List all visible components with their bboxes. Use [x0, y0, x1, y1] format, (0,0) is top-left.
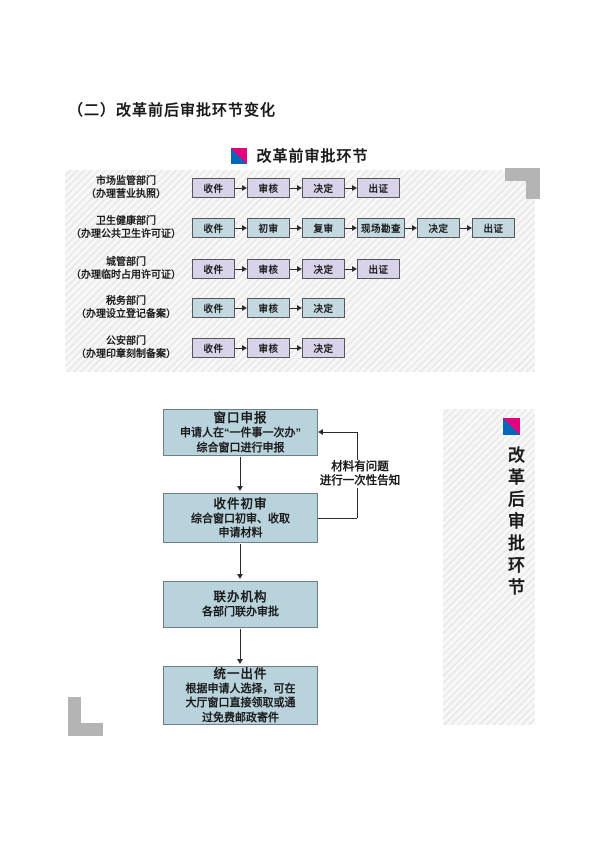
after-section-panel: 改革后审批环节: [443, 409, 535, 725]
flow-box-line: 综合窗口进行申报: [197, 441, 285, 456]
step-box: 决定: [302, 338, 345, 358]
right-arrow: [345, 178, 357, 198]
down-arrow: [236, 544, 245, 579]
step-box: 现场勘查: [357, 218, 405, 238]
right-arrow: [235, 178, 247, 198]
step-box: 收件: [192, 298, 235, 318]
flow-box-title: 窗口申报: [213, 410, 267, 426]
arrow-head: [412, 225, 417, 231]
arrow-head: [297, 266, 302, 272]
corner-bracket-bottom-left: [68, 697, 103, 736]
feedback-line-top: [323, 432, 358, 433]
dept-flow-row: 税务部门（办理设立登记备案）收件审核决定: [65, 295, 345, 321]
right-arrow: [345, 259, 357, 279]
after-heading-label: 改革后审批环节: [502, 446, 527, 600]
flow-box-line: 申请人在“一件事一次办”: [180, 426, 301, 441]
right-arrow: [290, 259, 302, 279]
arrow-head: [352, 225, 357, 231]
step-box: 收件: [192, 259, 235, 279]
after-flow-box: 窗口申报申请人在“一件事一次办”综合窗口进行申报: [163, 409, 318, 456]
flow-box-title: 统一出件: [213, 666, 267, 682]
arrow-head: [242, 345, 247, 351]
right-arrow: [235, 298, 247, 318]
arrow-head: [467, 225, 472, 231]
dept-note: （办理临时占用许可证）: [65, 269, 187, 282]
arrow-head: [297, 185, 302, 191]
arrow-head: [242, 185, 247, 191]
after-flow-box: 统一出件根据申请人选择，可在大厅窗口直接领取或通过免费邮政寄件: [163, 666, 318, 725]
dept-label: 市场监管部门（办理营业执照）: [65, 175, 187, 201]
dept-flow-row: 公安部门（办理印章刻制备案）收件审核决定: [65, 335, 345, 361]
dept-name: 市场监管部门: [65, 175, 187, 188]
page: （二）改革前后审批环节变化 改革前审批环节 市场监管部门（办理营业执照）收件审核…: [0, 0, 600, 849]
flow-box-title: 联办机构: [213, 589, 267, 605]
flow-box-line: 过免费邮政寄件: [202, 711, 279, 726]
flow-box-line: 申请材料: [219, 526, 263, 541]
dept-note: （办理营业执照）: [65, 188, 187, 201]
before-section-heading: 改革前审批环节: [0, 145, 600, 166]
dept-note: （办理公共卫生许可证）: [65, 228, 187, 241]
split-square-icon: [503, 418, 520, 435]
dept-flow-row: 城管部门（办理临时占用许可证）收件审核决定出证: [65, 256, 400, 282]
step-box: 收件: [192, 338, 235, 358]
step-box: 复审: [302, 218, 345, 238]
step-box: 出证: [357, 178, 400, 198]
before-heading-label: 改革前审批环节: [256, 145, 368, 166]
step-box: 审核: [247, 338, 290, 358]
right-arrow: [235, 218, 247, 238]
right-arrow: [290, 178, 302, 198]
dept-name: 卫生健康部门: [65, 215, 187, 228]
before-flow-panel: 市场监管部门（办理营业执照）收件审核决定出证卫生健康部门（办理公共卫生许可证）收…: [65, 170, 535, 372]
flow-box-line: 大厅窗口直接领取或通: [186, 696, 296, 711]
dept-label: 公安部门（办理印章刻制备案）: [65, 335, 187, 361]
feedback-line-bottom: [318, 518, 357, 519]
arrow-head: [242, 225, 247, 231]
dept-name: 公安部门: [65, 335, 187, 348]
right-arrow: [290, 338, 302, 358]
dept-label: 城管部门（办理临时占用许可证）: [65, 256, 187, 282]
step-box: 审核: [247, 259, 290, 279]
feedback-left-arrowhead: [318, 429, 323, 435]
step-box: 初审: [247, 218, 290, 238]
right-arrow: [405, 218, 417, 238]
arrow-head: [352, 185, 357, 191]
after-flow-box: 收件初审综合窗口初审、收取申请材料: [163, 493, 318, 543]
dept-label: 税务部门（办理设立登记备案）: [65, 295, 187, 321]
step-box: 决定: [302, 298, 345, 318]
flow-box-line: 综合窗口初审、收取: [191, 512, 290, 527]
flow-box-line: 根据申请人选择，可在: [186, 682, 296, 697]
step-box: 收件: [192, 218, 235, 238]
arrow-head: [242, 305, 247, 311]
right-arrow: [235, 259, 247, 279]
step-box: 决定: [417, 218, 460, 238]
step-box: 决定: [302, 178, 345, 198]
right-arrow: [235, 338, 247, 358]
arrow-head: [297, 345, 302, 351]
arrow-head: [352, 266, 357, 272]
step-box: 审核: [247, 298, 290, 318]
feedback-note: 材料有问题 进行一次性告知: [318, 460, 402, 488]
flow-box-line: 各部门联办审批: [202, 605, 279, 620]
dept-note: （办理印章刻制备案）: [65, 348, 187, 361]
step-box: 出证: [472, 218, 515, 238]
step-box: 出证: [357, 259, 400, 279]
right-arrow: [290, 298, 302, 318]
step-box: 收件: [192, 178, 235, 198]
flow-box-title: 收件初审: [213, 496, 267, 512]
arrow-head: [297, 225, 302, 231]
right-arrow: [290, 218, 302, 238]
page-title: （二）改革前后审批环节变化: [68, 99, 276, 120]
corner-bracket-top-right: [505, 168, 540, 199]
step-box: 决定: [302, 259, 345, 279]
dept-flow-row: 卫生健康部门（办理公共卫生许可证）收件初审复审现场勘查决定出证: [65, 215, 515, 241]
down-arrow: [236, 629, 245, 664]
split-square-icon: [231, 148, 247, 164]
after-flow-box: 联办机构各部门联办审批: [163, 581, 318, 628]
dept-name: 税务部门: [65, 295, 187, 308]
right-arrow: [460, 218, 472, 238]
dept-flow-row: 市场监管部门（办理营业执照）收件审核决定出证: [65, 175, 400, 201]
feedback-note-line: 材料有问题: [318, 460, 402, 474]
feedback-note-line: 进行一次性告知: [318, 474, 402, 488]
arrow-head: [297, 305, 302, 311]
dept-note: （办理设立登记备案）: [65, 308, 187, 321]
right-arrow: [345, 218, 357, 238]
dept-name: 城管部门: [65, 256, 187, 269]
down-arrow: [236, 457, 245, 491]
arrow-head: [242, 266, 247, 272]
step-box: 审核: [247, 178, 290, 198]
dept-label: 卫生健康部门（办理公共卫生许可证）: [65, 215, 187, 241]
